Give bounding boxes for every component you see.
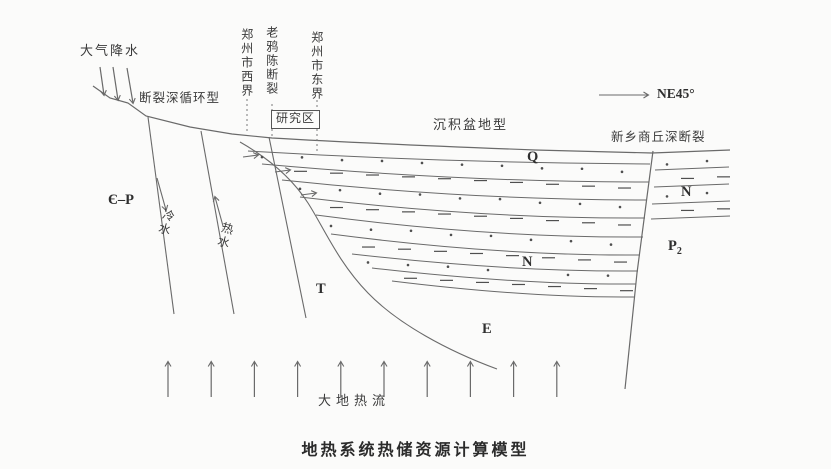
dot-fill-symbol bbox=[370, 228, 373, 231]
rain-arrows bbox=[100, 67, 133, 103]
dot-fill-symbol bbox=[607, 274, 610, 277]
dot-fill-symbol bbox=[579, 203, 582, 206]
dot-fill-symbol bbox=[419, 193, 422, 196]
sedimentary-basin-type-label: 沉积盆地型 bbox=[433, 118, 508, 133]
dot-fill-symbol bbox=[461, 163, 464, 166]
heat-flow-arrows bbox=[168, 362, 557, 397]
rain-arrow-icon bbox=[113, 67, 118, 100]
basin-margin-fault-line bbox=[269, 137, 306, 318]
dot-fill-symbol bbox=[666, 195, 669, 198]
dot-fill-symbol bbox=[381, 160, 384, 163]
dot-fill-symbol bbox=[487, 269, 490, 272]
fault-circulation-type-label: 断裂深循环型 bbox=[139, 91, 220, 105]
dot-fill-symbol bbox=[490, 235, 493, 238]
stratum-e-label: E bbox=[482, 321, 492, 338]
pinchout-arrow-icon bbox=[243, 155, 258, 157]
dot-fill-symbol bbox=[339, 189, 342, 192]
dot-fill-symbol bbox=[501, 164, 504, 167]
dot-fill-symbol bbox=[341, 159, 344, 162]
dot-fill-symbol bbox=[610, 243, 613, 246]
dot-fill-symbol bbox=[407, 264, 410, 267]
dot-fill-symbol bbox=[706, 160, 709, 163]
study-area-label: 研究区 bbox=[271, 110, 320, 129]
dot-fill-symbol bbox=[367, 261, 370, 264]
dot-fill-symbol bbox=[447, 265, 450, 268]
zhengzhou-east-boundary-label: 郑州市东界 bbox=[309, 31, 323, 101]
dot-fill-symbol bbox=[450, 234, 453, 237]
stratum-n-right-label: N bbox=[681, 184, 691, 201]
dot-fill-symbol bbox=[541, 167, 544, 170]
stratum-t-label: T bbox=[316, 281, 326, 298]
laoyachen-fault-label: 老鸦陈断裂 bbox=[264, 26, 278, 96]
dot-fill-symbol bbox=[459, 197, 462, 200]
rain-arrow-icon bbox=[127, 68, 133, 103]
dot-fill-symbol bbox=[619, 206, 622, 209]
xinxiang-shangqiu-fault-label: 新乡商丘深断裂 bbox=[611, 130, 706, 144]
dot-fill-symbol bbox=[379, 192, 382, 195]
stratum-q-label: Q bbox=[527, 149, 538, 166]
dot-fill-symbol bbox=[621, 171, 624, 174]
layer-fill-symbols bbox=[261, 156, 730, 291]
diagram-canvas bbox=[0, 0, 831, 469]
dot-fill-symbol bbox=[410, 229, 413, 232]
dot-fill-symbol bbox=[539, 202, 542, 205]
dot-fill-symbol bbox=[421, 162, 424, 165]
xinxiang-fault-line bbox=[625, 151, 653, 389]
dot-fill-symbol bbox=[666, 163, 669, 166]
ne45-direction-label: NE45° bbox=[657, 86, 695, 102]
dot-fill-symbol bbox=[570, 240, 573, 243]
figure-caption: 地热系统热储资源计算模型 bbox=[0, 436, 831, 460]
stratum-n-center-label: N bbox=[522, 254, 532, 271]
pinchout-arrow-icon bbox=[301, 193, 316, 195]
zhengzhou-west-boundary-label: 郑州市西界 bbox=[239, 28, 253, 98]
stratum-p2-label: P2 bbox=[668, 238, 682, 257]
dot-fill-symbol bbox=[499, 198, 502, 201]
cambrian-permian-label: Є–P bbox=[108, 192, 134, 209]
stratum-p2-main: P bbox=[668, 238, 677, 254]
dot-fill-symbol bbox=[261, 156, 264, 159]
dot-fill-symbol bbox=[581, 167, 584, 170]
dot-fill-symbol bbox=[299, 188, 302, 191]
dot-fill-symbol bbox=[567, 274, 570, 277]
dot-fill-symbol bbox=[706, 192, 709, 195]
stratum-p2-sub: 2 bbox=[677, 246, 682, 257]
dot-fill-symbol bbox=[530, 239, 533, 242]
precipitation-label: 大气降水 bbox=[80, 44, 140, 59]
terrestrial-heat-flow-label: 大地热流 bbox=[318, 394, 390, 409]
dot-fill-symbol bbox=[330, 225, 333, 228]
geothermal-model-figure: 大气降水 断裂深循环型 郑州市西界 老鸦陈断裂 郑州市东界 研究区 沉积盆地型 … bbox=[0, 0, 831, 469]
dot-fill-symbol bbox=[301, 156, 304, 159]
pinchout-arrow-icon bbox=[275, 170, 290, 172]
